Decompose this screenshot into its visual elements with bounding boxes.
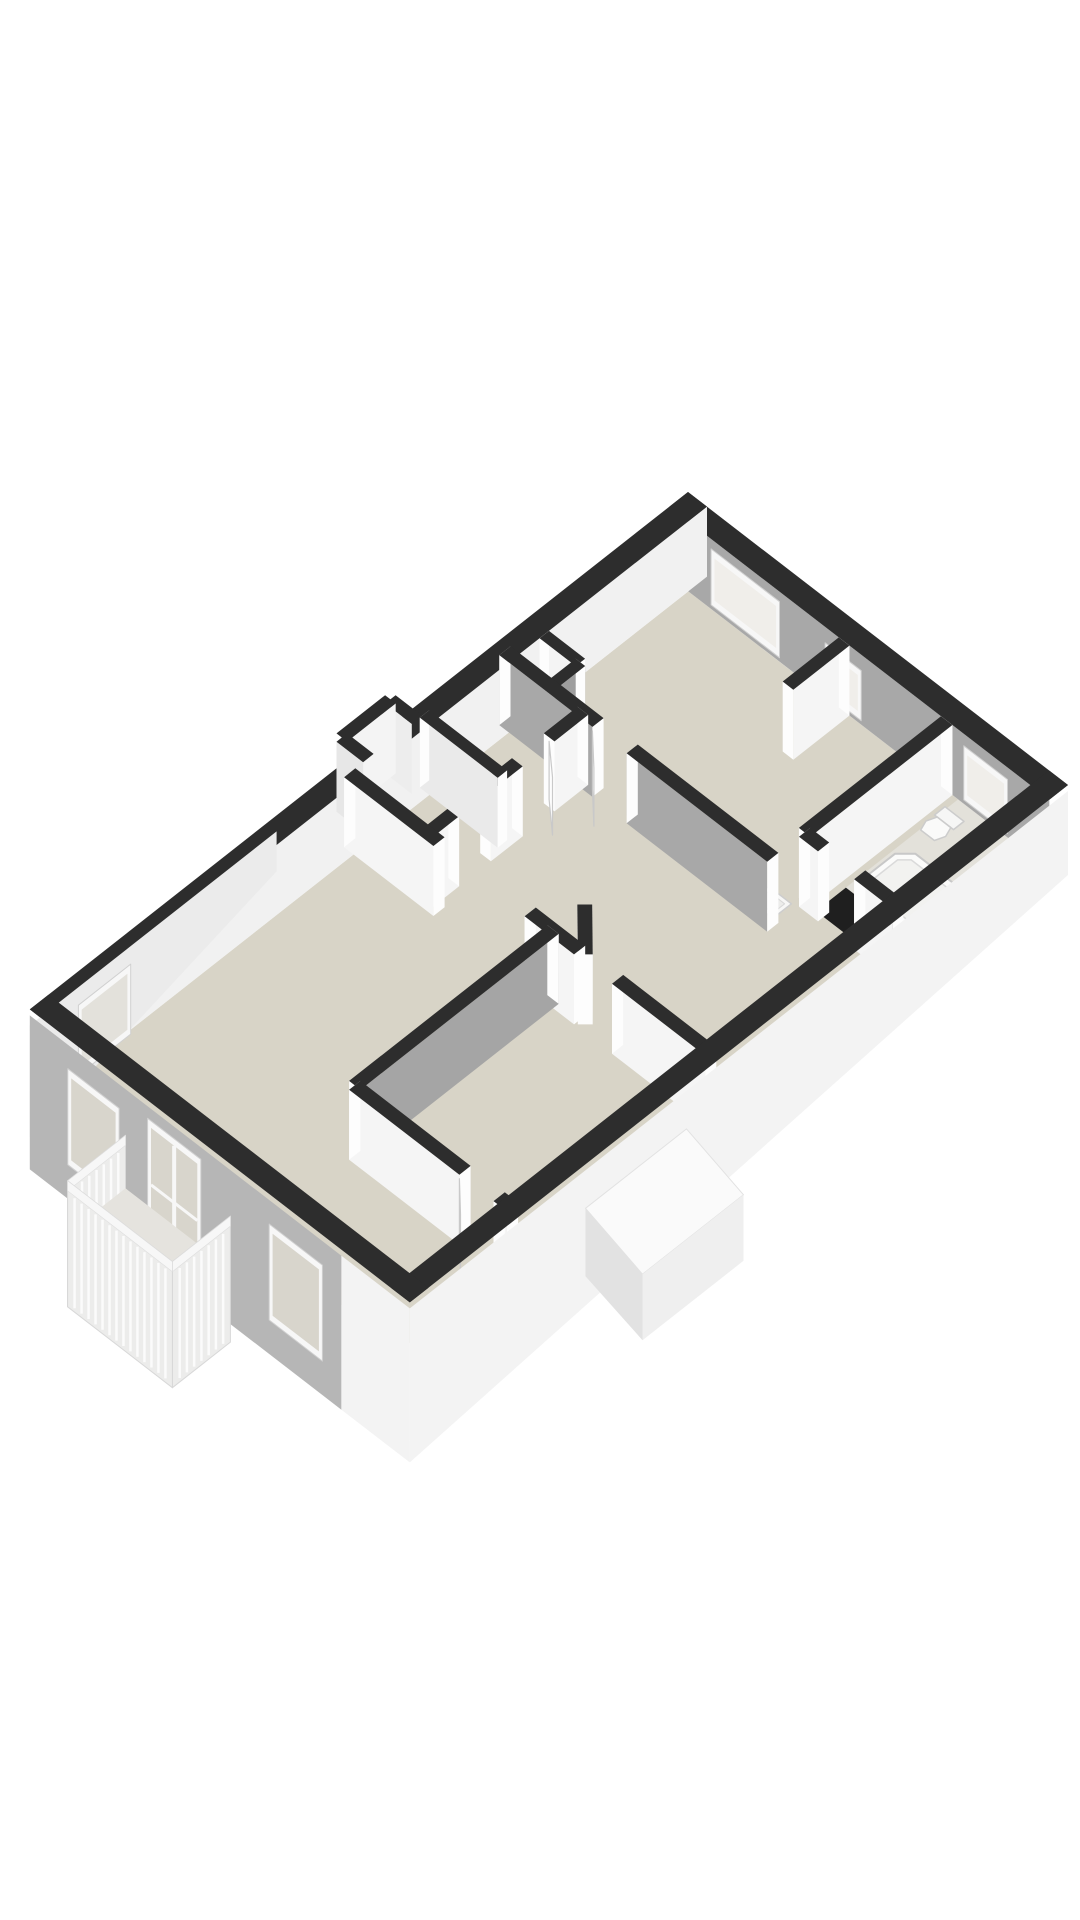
floorplan-3d-render — [0, 0, 1080, 1920]
wall-living-n-cap — [574, 946, 585, 1025]
wall-bed1-sw-cap — [767, 853, 778, 932]
wall-living-n-cap — [433, 837, 444, 916]
floorplan-svg — [0, 0, 1080, 1920]
wall-closet-div-cap — [498, 770, 507, 847]
wall-bath-sw-cap — [818, 843, 829, 922]
stub-bedroom1-cap — [783, 682, 794, 760]
